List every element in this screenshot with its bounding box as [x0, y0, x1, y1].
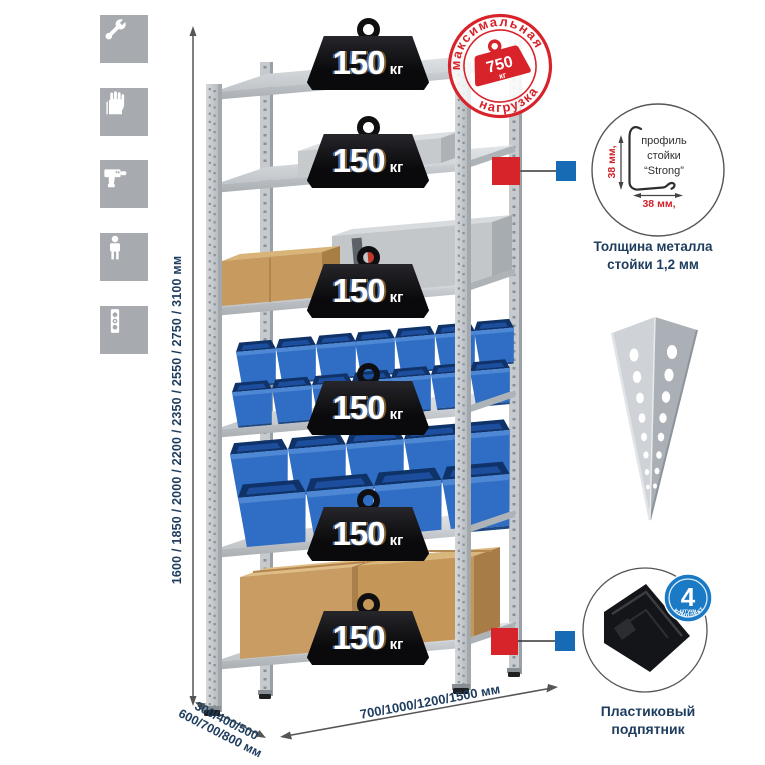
- profile-title: профиль стойки “Strong”: [634, 134, 694, 179]
- profile-dim-vertical: 38 мм,: [606, 139, 618, 185]
- drill-icon: [100, 160, 148, 208]
- wrench-icon: [100, 15, 148, 63]
- level-icon: [100, 306, 148, 354]
- thickness-caption: Толщина металла стойки 1,2 мм: [577, 238, 729, 273]
- shelf-load-badge-2: 150кг: [303, 116, 433, 188]
- profile-title-line3: “Strong”: [644, 165, 684, 177]
- foot-callout-marker: [491, 628, 575, 655]
- shelf-load-badge-6: 150кг: [303, 593, 433, 665]
- shelf-load-badge-5: 150кг: [303, 489, 433, 561]
- height-dimension-line: [190, 26, 197, 706]
- profile-title-line1: профиль: [641, 135, 687, 147]
- badge-value: 4: [681, 582, 696, 612]
- foot-caption-line1: Пластиковый: [601, 703, 696, 719]
- shelf-load-badge-4: 150кг: [303, 363, 433, 435]
- corner-post-illustration: [612, 317, 697, 520]
- profile-title-line2: стойки: [647, 150, 681, 162]
- shelf-load-badge-3: 150кг: [303, 246, 433, 318]
- height-dimension-label: 1600 / 1850 / 2000 / 2200 / 2350 / 2550 …: [170, 220, 186, 620]
- product-infographic: 4 штуки в комплекте максимальная нагрузк…: [0, 0, 765, 765]
- profile-dim-horizontal: 38 мм,: [636, 198, 682, 210]
- thickness-line2: стойки 1,2 мм: [607, 257, 699, 272]
- gloves-icon: [100, 88, 148, 136]
- thickness-line1: Толщина металла: [593, 239, 712, 254]
- foot-caption-line2: подпятник: [611, 721, 684, 737]
- person-icon: [100, 233, 148, 281]
- profile-callout-marker: [492, 157, 576, 185]
- shelf-load-badge-1: 150кг: [303, 18, 433, 90]
- plastic-foot-caption: Пластиковый подпятник: [572, 702, 724, 738]
